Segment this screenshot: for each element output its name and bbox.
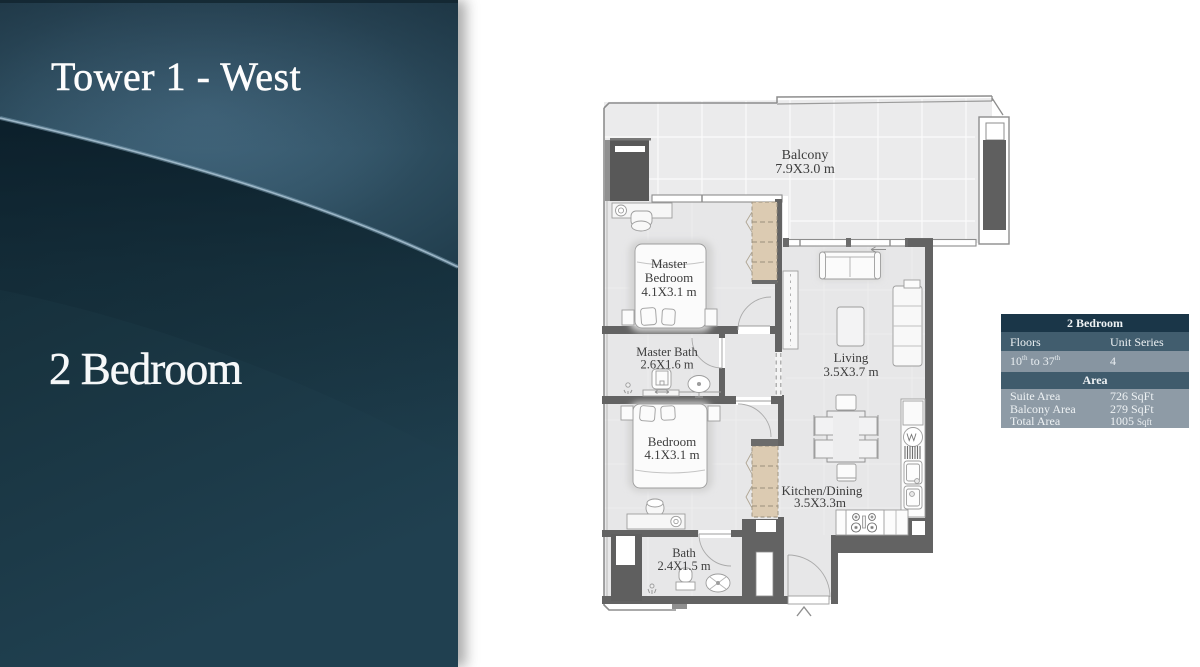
svg-text:Master: Master: [651, 256, 688, 271]
svg-text:7.9X3.0 m: 7.9X3.0 m: [775, 162, 835, 177]
svg-text:4.1X3.1 m: 4.1X3.1 m: [641, 284, 696, 299]
svg-text:Balcony: Balcony: [782, 148, 829, 163]
svg-text:Living: Living: [834, 350, 869, 365]
svg-text:3.5X3.3m: 3.5X3.3m: [794, 495, 846, 510]
svg-text:2.4X1.5 m: 2.4X1.5 m: [657, 559, 710, 573]
svg-text:2.6X1.6 m: 2.6X1.6 m: [640, 358, 693, 372]
svg-text:Bedroom: Bedroom: [645, 270, 693, 285]
svg-text:3.5X3.7 m: 3.5X3.7 m: [823, 364, 878, 379]
svg-text:Bath: Bath: [672, 546, 696, 560]
svg-text:4.1X3.1 m: 4.1X3.1 m: [644, 447, 699, 462]
